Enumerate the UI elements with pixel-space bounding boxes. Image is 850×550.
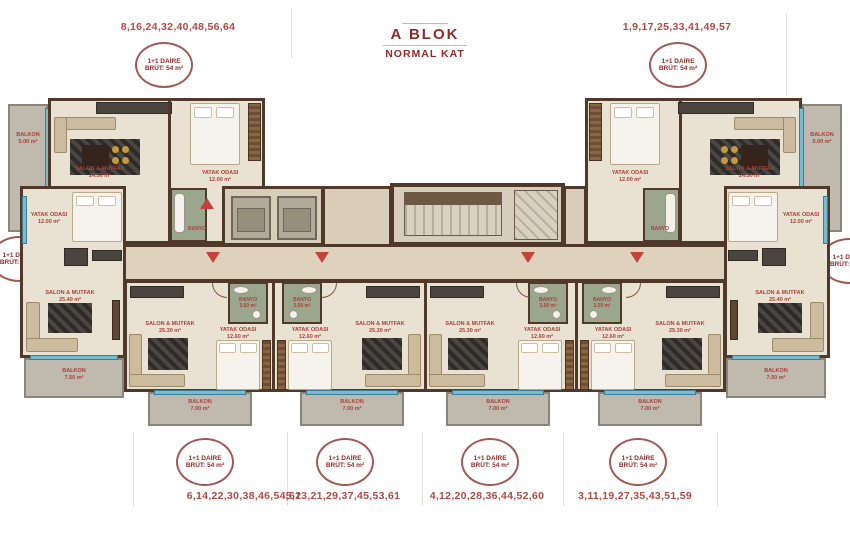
washbasin [301,286,317,294]
chair [112,146,119,153]
plan-title: A BLOK [365,26,485,43]
sofa [129,374,185,387]
chair [721,157,728,164]
unit-numbers-bottom-3: 4,12,20,28,36,44,52,60 [407,490,567,502]
room-label-salon-top-right: SALON & MUTFAK 24.50 m² [710,166,790,179]
kitchen-counter [728,250,758,261]
pillow [291,343,308,353]
kitchen-counter [96,102,172,114]
window-strip [306,390,398,395]
tv-unit [112,300,120,340]
elevator-car [283,208,311,232]
rug [448,338,488,370]
pillow [614,107,632,118]
pillow [732,196,750,206]
chair [122,157,129,164]
party-wall [424,280,427,392]
badge-area-label: BRÜT: 54 m² [186,462,224,469]
pillow [542,343,559,353]
entrance-arrow-icon [630,252,644,263]
toilet [252,310,261,319]
title-rule-bottom [383,45,467,46]
wardrobe [248,103,261,161]
entrance-arrow-icon [206,252,220,263]
pillow [216,107,234,118]
pillow [754,196,772,206]
chair [112,157,119,164]
pillow [98,196,116,206]
unit-numbers-bottom-2: 5,13,21,29,37,45,53,61 [263,490,423,502]
room-label-balcony-bottom: BALKON 7.00 m² [318,399,386,412]
unit-badge-bottom-3: 1+1 DAİRE BRÜT: 54 m² [461,438,519,486]
kitchen-counter [762,248,786,266]
elevator-car [237,208,265,232]
sofa [54,117,67,153]
wardrobe [589,103,602,161]
sofa [772,338,824,352]
pillow [76,196,94,206]
unit-numbers-top-left: 8,16,24,32,40,48,56,64 [93,21,263,33]
guide-line [133,432,134,506]
room-label-balcony-right: BALKON 5.00 m² [804,132,840,145]
unit-numbers-bottom-4: 3,11,19,27,35,43,51,59 [555,490,715,502]
rug [148,338,188,370]
pillow [194,107,212,118]
room-label-salon-bottom: SALON & MUTFAK 25.30 m² [430,321,510,334]
window-strip [30,355,118,360]
kitchen-counter [666,286,720,298]
guide-line [717,432,718,506]
badge-type-label: 1+1 DAİRE [832,254,850,261]
room-label-salon-bottom: SALON & MUTFAK 25.30 m² [340,321,420,334]
room-label-bedroom-bottom: YATAK ODASI 12.60 m² [278,327,342,340]
wardrobe [565,340,574,390]
title-rule-top [402,23,448,24]
room-label-bedroom-top-left: YATAK ODASI 12.00 m² [180,170,260,183]
sofa [665,374,721,387]
unit-badge-bottom-1: 1+1 DAİRE BRÜT: 54 m² [176,438,234,486]
kitchen-counter [92,250,122,261]
pillow [594,343,611,353]
entrance-arrow-icon [200,198,214,209]
stair-landing [404,192,502,204]
corridor [122,244,728,282]
room-label-bath: BANYO 3.50 m² [583,297,621,309]
sofa [429,374,485,387]
dining-table [741,145,768,168]
lobby-floor [322,186,392,244]
toilet [589,310,598,319]
room-label-balcony-bottom: BALKON 7.00 m² [464,399,532,412]
rug [362,338,402,370]
wardrobe [262,340,271,390]
badge-type-label: 1+1 DAİRE [147,58,180,65]
bathtub [174,193,185,233]
chair [731,146,738,153]
badge-type-label: 1+1 DAİRE [473,455,506,462]
window-strip [154,390,246,395]
room-label-balcony-left: BALKON 5.00 m² [10,132,46,145]
window-strip [604,390,696,395]
badge-type-label: 1+1 DAİRE [188,455,221,462]
badge-area-label: BRÜT: 54 m² [619,462,657,469]
room-label-bedroom-left-middle: YATAK ODASI 12.00 m² [26,212,72,225]
wardrobe [277,340,286,390]
badge-type-label: 1+1 DAİRE [621,455,654,462]
kitchen-counter [64,248,88,266]
sofa [26,338,78,352]
plan-subtitle: NORMAL KAT [365,48,485,60]
pillow [521,343,538,353]
badge-area-label: BRÜT: 56 m² [830,261,850,268]
room-label-bath: BANYO 3.50 m² [283,297,321,309]
pillow [240,343,257,353]
kitchen-counter [130,286,184,298]
badge-area-label: BRÜT: 54 m² [326,462,364,469]
entrance-arrow-icon [521,252,535,263]
staircase [514,190,558,240]
badge-area-label: BRÜT: 54 m² [471,462,509,469]
room-label-bedroom-top-right: YATAK ODASI 12.00 m² [590,170,670,183]
room-label-salon-bottom: SALON & MUTFAK 25.30 m² [130,321,210,334]
room-label-salon-left-middle: SALON & MUTFAK 25.40 m² [30,290,110,303]
room-label-bedroom-bottom: YATAK ODASI 12.60 m² [581,327,645,340]
washbasin [533,286,549,294]
badge-area-label: BRÜT: 54 m² [145,65,183,72]
chair [122,146,129,153]
washbasin [601,286,617,294]
room-label-bedroom-right-middle: YATAK ODASI 12.00 m² [778,212,824,225]
toilet [289,310,298,319]
room-label-balcony-right-corner: BALKON 7.50 m² [742,368,810,381]
dining-table [82,145,109,168]
room-label-bedroom-bottom: YATAK ODASI 12.60 m² [510,327,574,340]
entrance-arrow-icon [315,252,329,263]
window-strip [452,390,544,395]
kitchen-counter [430,286,484,298]
room-label-salon-bottom: SALON & MUTFAK 25.30 m² [640,321,720,334]
kitchen-counter [678,102,754,114]
wardrobe [580,340,589,390]
room-label-bath-top-right: BANYO [649,226,671,232]
chair [731,157,738,164]
pillow [312,343,329,353]
badge-type-label: 1+1 DAİRE [328,455,361,462]
staircase [404,204,502,236]
room-label-bath: BANYO 3.50 m² [529,297,567,309]
pillow [219,343,236,353]
party-wall [575,280,578,392]
badge-area-label: BRÜT: 54 m² [659,65,697,72]
badge-type-label: 1+1 DAİRE [661,58,694,65]
pillow [615,343,632,353]
room-label-bath-top-left: BANYO [186,226,208,232]
guide-line [291,8,292,58]
sofa [365,374,421,387]
floorplan-canvas: A BLOK NORMAL KAT 8,16,24,32,40,48,56,64… [0,0,850,550]
lobby-floor [563,186,587,244]
unit-badge-bottom-2: 1+1 DAİRE BRÜT: 54 m² [316,438,374,486]
room-label-balcony-left-corner: BALKON 7.50 m² [40,368,108,381]
unit-numbers-top-right: 1,9,17,25,33,41,49,57 [592,21,762,33]
room-label-balcony-bottom: BALKON 7.00 m² [616,399,684,412]
guide-line [786,14,787,96]
unit-badge-top-left: 1+1 DAİRE BRÜT: 54 m² [135,42,193,88]
pillow [636,107,654,118]
washbasin [233,286,249,294]
unit-badge-bottom-4: 1+1 DAİRE BRÜT: 54 m² [609,438,667,486]
sofa [783,117,796,153]
room-label-salon-right-middle: SALON & MUTFAK 25.40 m² [740,290,820,303]
rug [48,303,92,333]
chair [721,146,728,153]
kitchen-counter [366,286,420,298]
rug [758,303,802,333]
room-label-bath: BANYO 3.50 m² [229,297,267,309]
unit-badge-top-right: 1+1 DAİRE BRÜT: 54 m² [649,42,707,88]
window-strip [732,355,820,360]
room-label-bedroom-bottom: YATAK ODASI 12.60 m² [206,327,270,340]
party-wall [272,280,275,392]
tv-unit [730,300,738,340]
room-label-salon-top-left: SALON & MUTFAK 24.50 m² [60,166,140,179]
room-label-balcony-bottom: BALKON 7.00 m² [166,399,234,412]
interior-wall [679,100,682,242]
toilet [552,310,561,319]
rug [662,338,702,370]
